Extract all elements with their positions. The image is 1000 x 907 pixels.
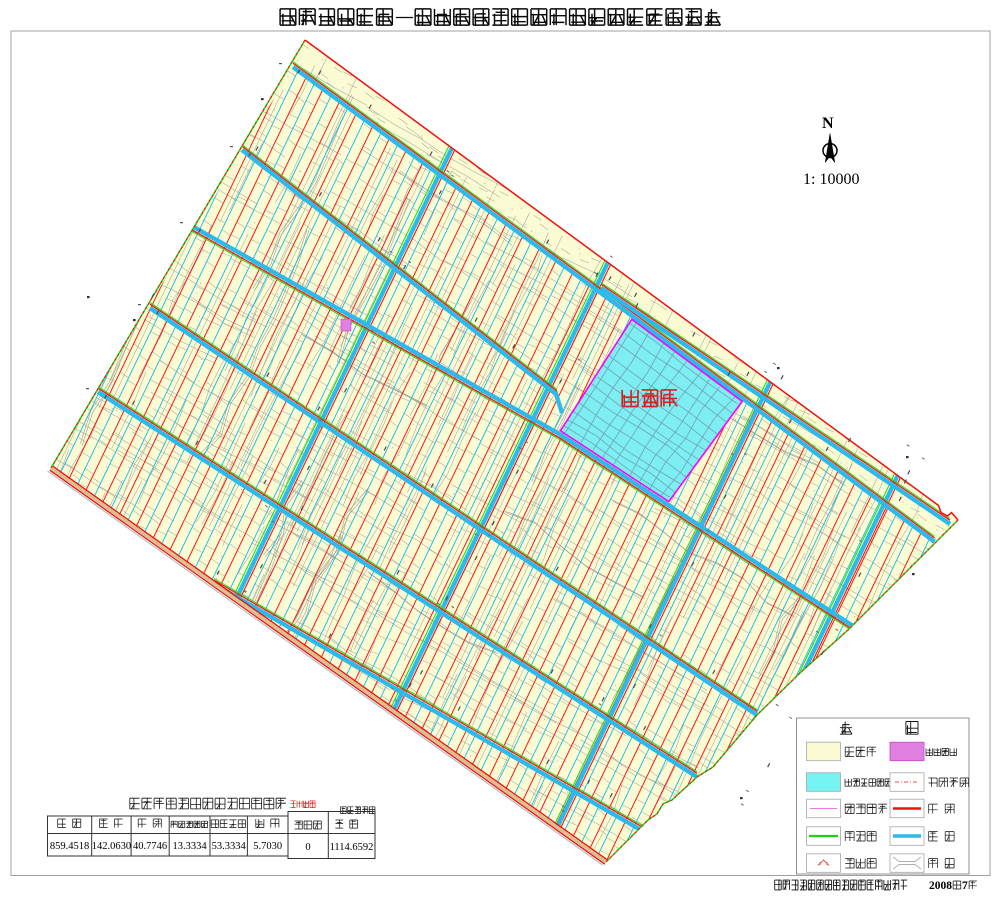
svg-text:1114.6592: 1114.6592 [330,842,374,853]
svg-text:53.3334: 53.3334 [212,841,247,852]
svg-text:13.3334: 13.3334 [173,841,208,852]
svg-text:0: 0 [305,842,310,853]
svg-text:N: N [822,115,834,132]
svg-text:1: 10000: 1: 10000 [803,171,859,188]
svg-text:859.4518: 859.4518 [50,841,89,852]
svg-text:7: 7 [962,880,968,892]
svg-text:2008: 2008 [929,880,952,892]
svg-text:40.7746: 40.7746 [133,841,167,852]
svg-text:142.0630: 142.0630 [92,841,131,852]
svg-text:5.7030: 5.7030 [253,841,282,852]
